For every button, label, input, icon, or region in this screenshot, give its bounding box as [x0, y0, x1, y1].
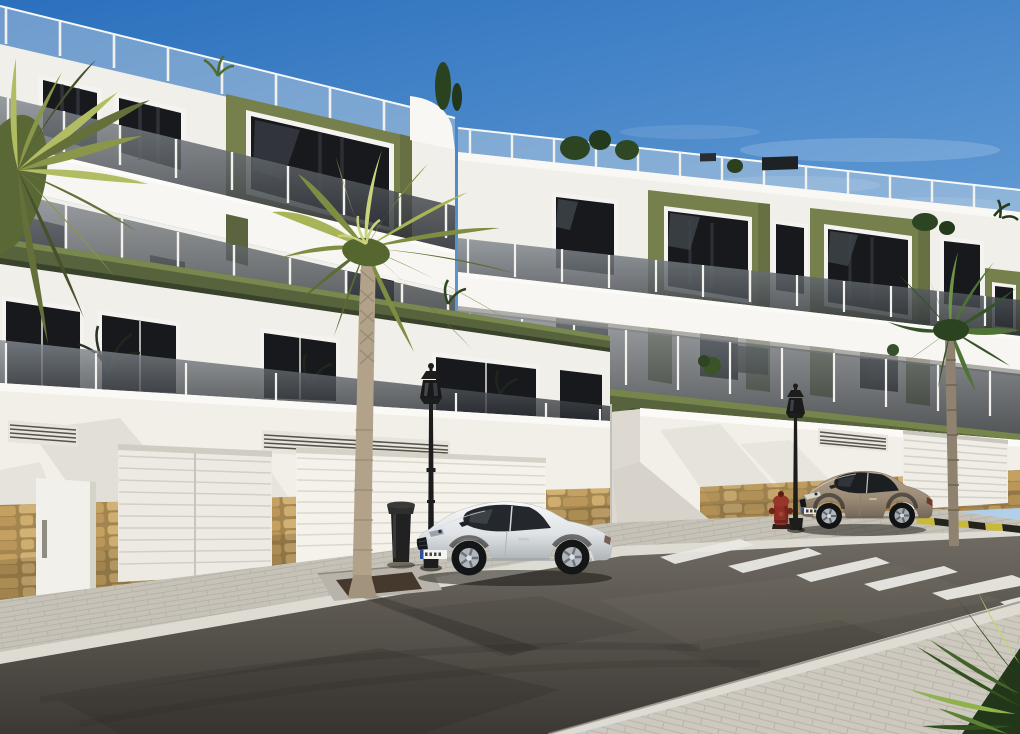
render-canvas [0, 0, 1020, 734]
white-car-wheel-rear [555, 540, 590, 575]
beige-car-wheel-rear [889, 503, 915, 529]
beige-car-wheel-front [816, 503, 842, 529]
architectural-render-scene [0, 0, 1020, 734]
white-car-wheel-front [452, 541, 487, 576]
garage-door-narrow [36, 478, 96, 596]
garage-door-wide-left [118, 444, 272, 582]
